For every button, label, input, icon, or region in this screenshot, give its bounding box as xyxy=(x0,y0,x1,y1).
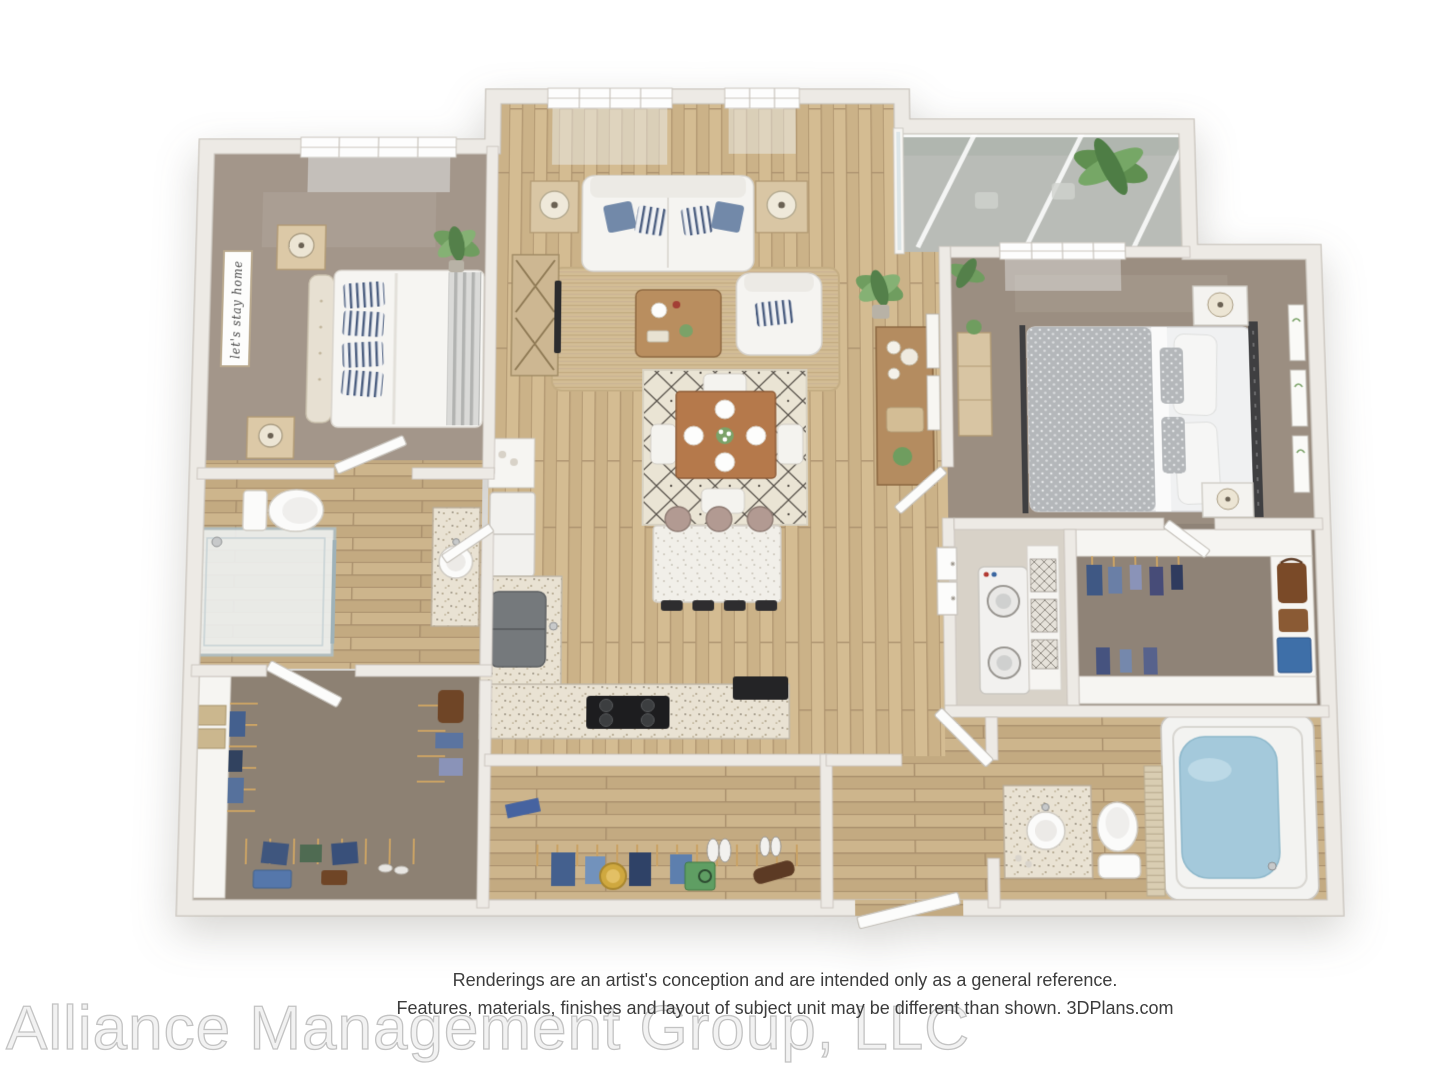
shoe-icon xyxy=(707,839,719,863)
entry-vestibule-floor xyxy=(832,756,1000,902)
appliance-icon xyxy=(733,676,788,699)
wall-sign: let's stay home xyxy=(221,251,252,366)
bathtub-icon xyxy=(1143,715,1319,900)
nightstand-icon xyxy=(1202,483,1254,517)
cooktop-icon xyxy=(586,696,669,729)
bag-icon xyxy=(321,870,347,885)
armchair-icon xyxy=(736,273,821,355)
bag-icon xyxy=(1278,609,1308,632)
disclaimer-line2: Features, materials, finishes and layout… xyxy=(396,994,1173,1022)
shoe-icon xyxy=(771,837,781,857)
kitchen-island xyxy=(653,507,781,611)
nightstand-icon xyxy=(277,225,326,269)
floorplan-svg: let's stay home xyxy=(82,56,1357,968)
hanging-clothes xyxy=(551,852,575,886)
bag-icon xyxy=(438,690,464,723)
bed-icon xyxy=(306,270,484,427)
hanging-clothes xyxy=(1086,565,1102,596)
hanging-clothes xyxy=(1171,565,1183,590)
hanging-clothes xyxy=(1120,649,1132,672)
hanging-clothes xyxy=(228,750,242,772)
hanging-clothes xyxy=(1143,647,1157,674)
tub-tile-apron xyxy=(1144,766,1165,896)
bag-icon xyxy=(1277,563,1308,603)
folded-jeans xyxy=(253,870,291,888)
wall-sign-text: let's stay home xyxy=(228,260,245,359)
hanging-clothes xyxy=(331,841,358,865)
window-icon xyxy=(725,88,800,153)
hanging-clothes xyxy=(629,852,651,886)
bar-stool-icon xyxy=(706,507,731,532)
hanging-clothes xyxy=(1149,567,1163,596)
toilet-icon xyxy=(1097,802,1141,878)
end-table-right xyxy=(756,181,808,232)
bar-stool-icon xyxy=(724,600,746,611)
tv-console-icon xyxy=(511,255,562,376)
vanity-sink-icon xyxy=(431,508,480,627)
floorplan-rendering: let's stay home xyxy=(0,0,1440,1080)
bar-stool-icon xyxy=(661,600,683,611)
tv-icon xyxy=(554,281,561,354)
hanging-clothes xyxy=(1108,567,1122,594)
closet2-shelf-unit xyxy=(1271,556,1316,676)
closet-shelves xyxy=(1079,676,1317,703)
vanity-sink-icon xyxy=(1003,786,1092,879)
shoe-icon xyxy=(719,839,731,863)
nightstand-icon xyxy=(1193,286,1248,325)
toilet-icon xyxy=(243,490,324,532)
dining-area xyxy=(643,370,808,525)
hanging-clothes xyxy=(300,845,322,863)
hanging-clothes xyxy=(261,841,290,865)
dining-table-icon xyxy=(676,392,776,479)
bar-stool-icon xyxy=(692,600,714,611)
dining-chair xyxy=(777,424,803,464)
hanging-clothes xyxy=(439,758,463,776)
laundry-closet xyxy=(978,546,1061,694)
laundry-baskets xyxy=(1027,546,1061,690)
bar-stool-icon xyxy=(755,600,777,611)
sofa-icon xyxy=(582,176,754,272)
bar-stool-icon xyxy=(665,507,691,532)
window-icon xyxy=(547,88,672,164)
shoe-icon xyxy=(760,837,770,857)
shower-icon xyxy=(194,529,335,656)
window-icon xyxy=(1000,243,1126,291)
hanging-clothes xyxy=(435,733,463,749)
nightstand-icon xyxy=(247,417,295,458)
end-table-left xyxy=(530,181,579,232)
green-bag-icon xyxy=(685,862,715,890)
storage-box-icon xyxy=(1277,638,1312,673)
dresser-icon xyxy=(957,320,992,436)
washer-dryer-icon xyxy=(978,567,1029,694)
window-icon xyxy=(300,137,457,192)
disclaimer: Renderings are an artist's conception an… xyxy=(396,966,1173,1022)
hanging-clothes xyxy=(229,711,246,736)
disclaimer-line1: Renderings are an artist's conception an… xyxy=(396,966,1173,994)
bar-stool-icon xyxy=(747,507,773,532)
hanging-clothes xyxy=(227,778,244,803)
entry-closet-floor xyxy=(483,760,827,902)
dining-chair xyxy=(651,424,676,464)
floorplan-3d-view: let's stay home xyxy=(82,56,1357,968)
hanging-clothes xyxy=(1130,565,1142,590)
hanging-clothes xyxy=(1096,647,1110,674)
console-table-icon xyxy=(876,327,934,485)
coffee-table-icon xyxy=(636,290,721,357)
